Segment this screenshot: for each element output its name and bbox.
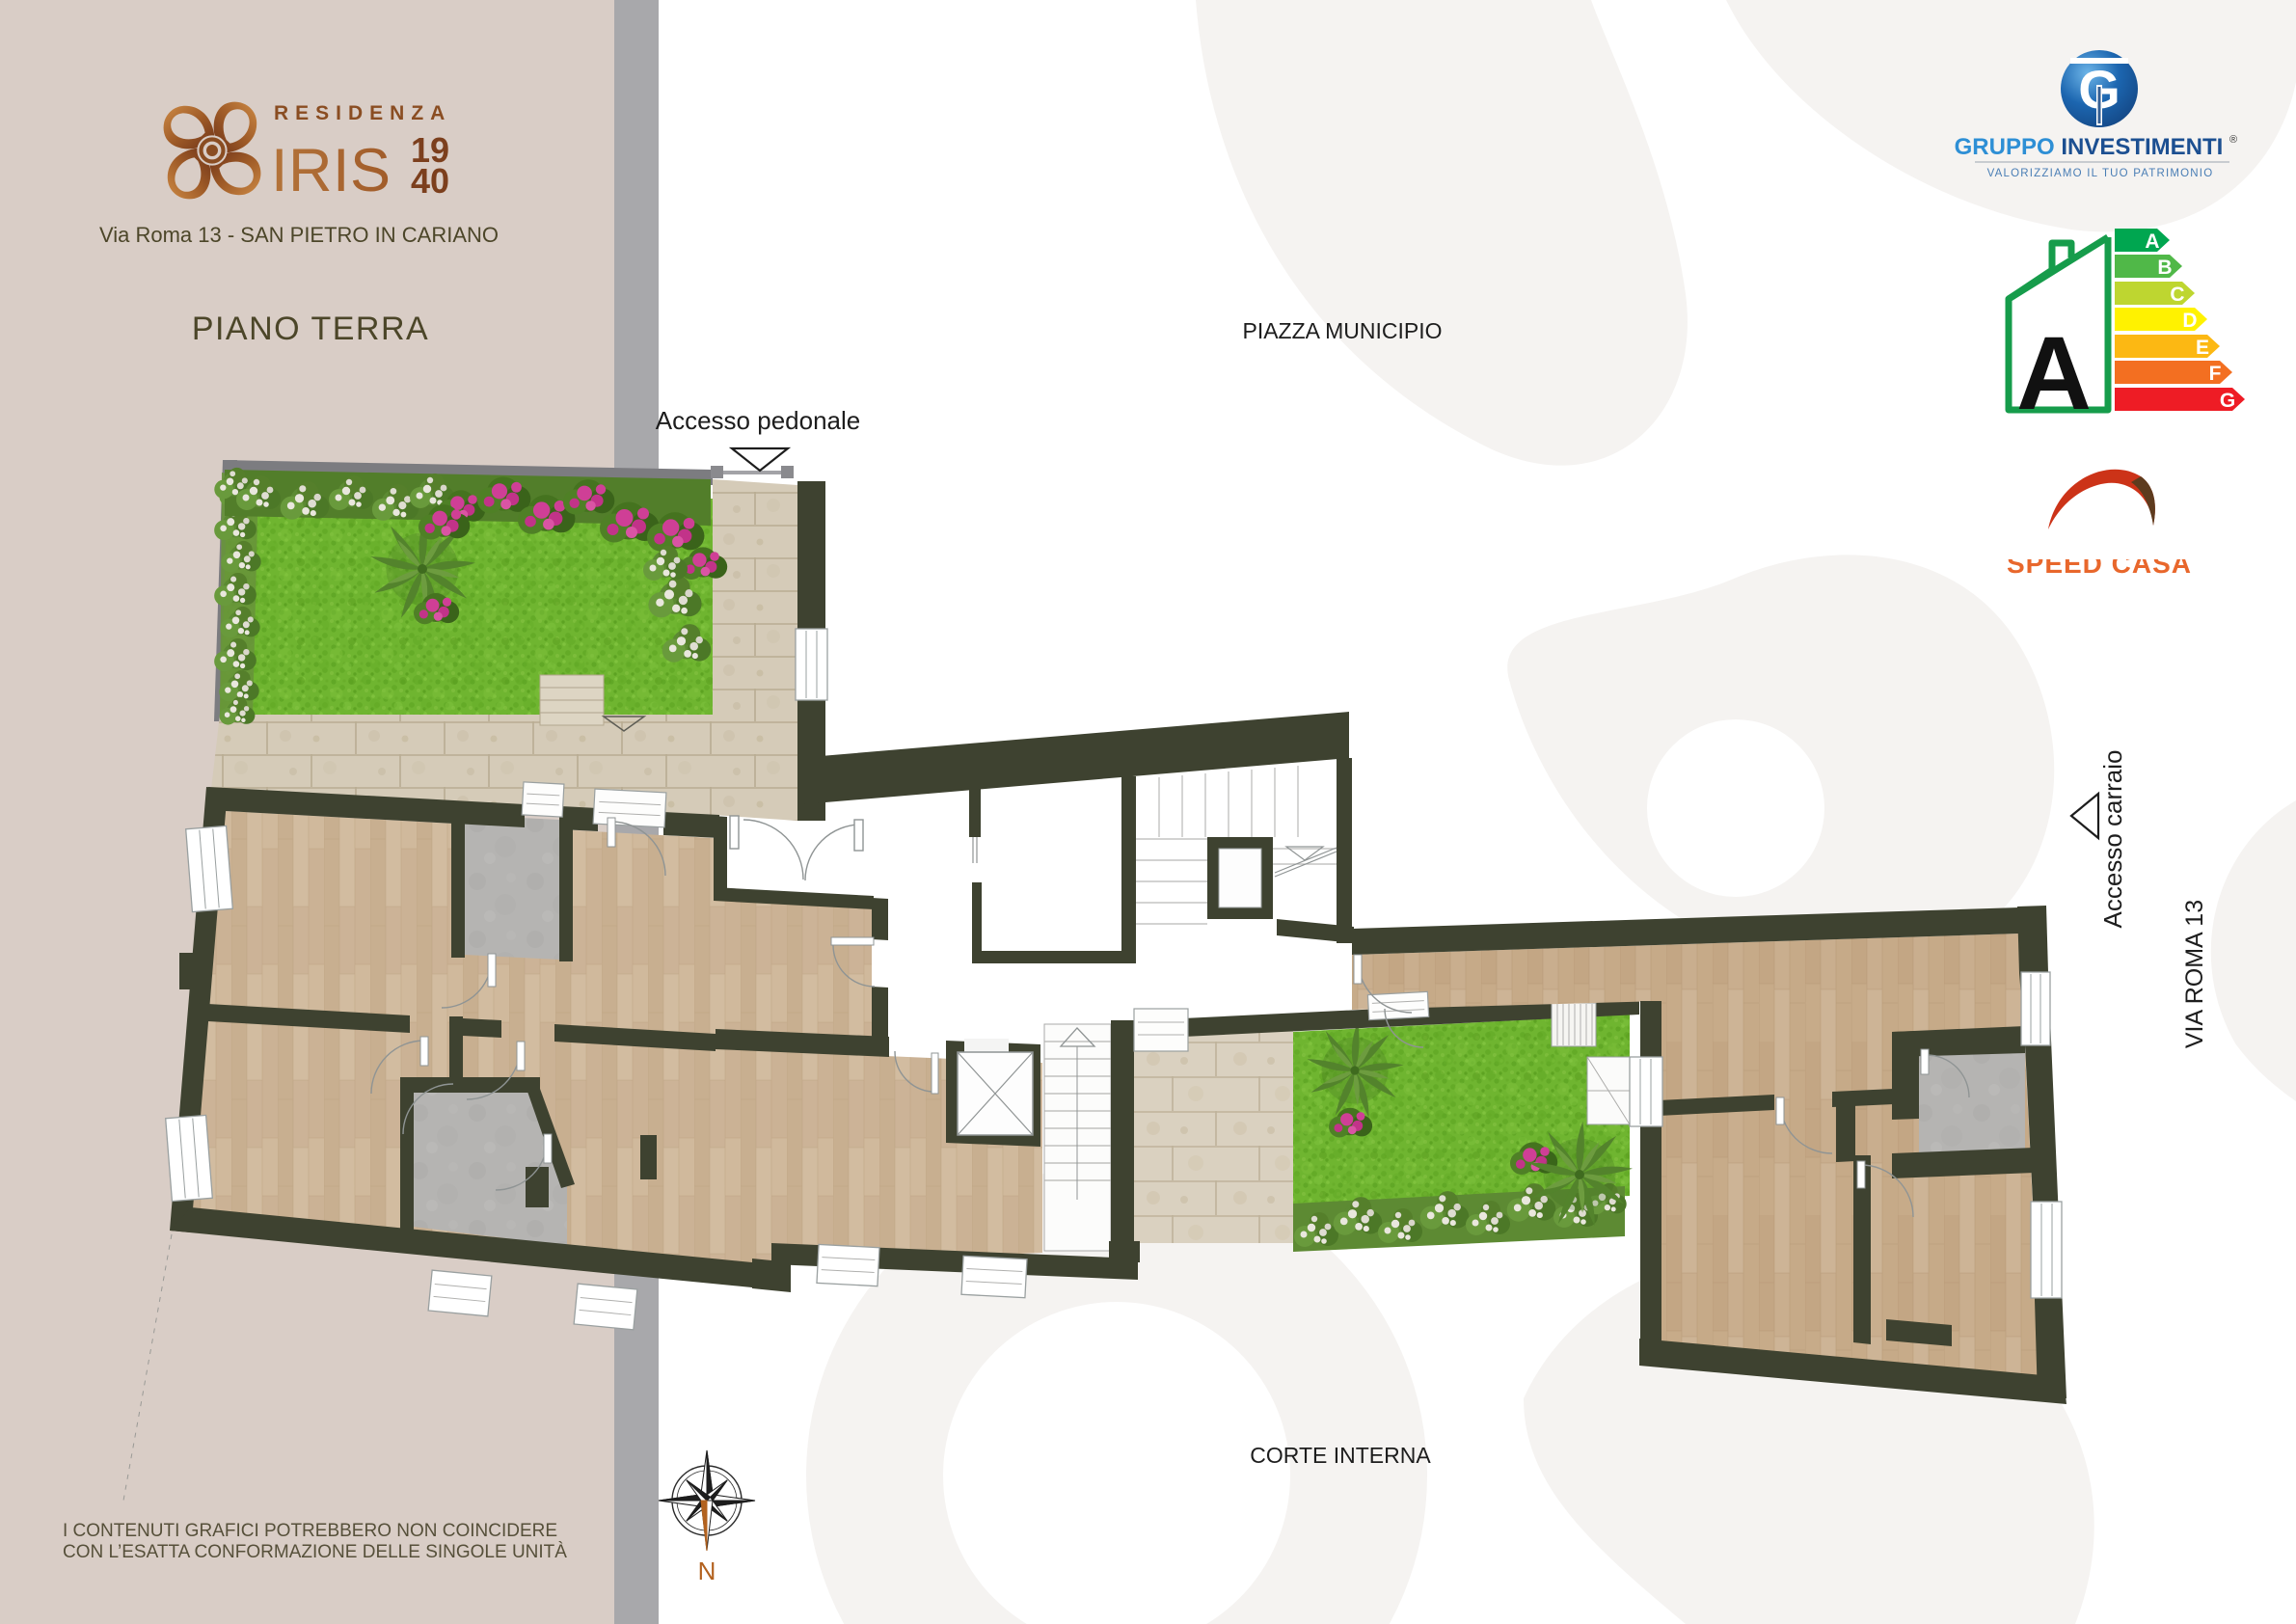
svg-text:VIA ROMA 13: VIA ROMA 13	[2181, 900, 2208, 1048]
svg-text:D: D	[2182, 310, 2197, 332]
svg-text:Via Roma 13 - SAN PIETRO IN CA: Via Roma 13 - SAN PIETRO IN CARIANO	[99, 223, 499, 247]
svg-text:GRUPPO INVESTIMENTI: GRUPPO INVESTIMENTI	[1955, 134, 2224, 160]
svg-text:C: C	[2170, 284, 2184, 306]
svg-text:A: A	[2016, 314, 2092, 431]
svg-text:®: ®	[2229, 134, 2237, 146]
svg-text:B: B	[2157, 257, 2172, 279]
svg-text:CON L’ESATTA CONFORMAZIONE DEL: CON L’ESATTA CONFORMAZIONE DELLE SINGOLE…	[63, 1542, 567, 1562]
svg-text:I CONTENUTI GRAFICI POTREBBERO: I CONTENUTI GRAFICI POTREBBERO NON COINC…	[63, 1521, 557, 1541]
svg-text:Accesso carraio: Accesso carraio	[2098, 750, 2127, 929]
svg-text:Accesso pedonale: Accesso pedonale	[656, 406, 860, 435]
svg-text:F: F	[2209, 363, 2222, 385]
svg-text:PIAZZA MUNICIPIO: PIAZZA MUNICIPIO	[1242, 318, 1442, 343]
svg-text:G: G	[2220, 390, 2235, 412]
svg-text:A: A	[2145, 230, 2159, 253]
svg-text:40: 40	[411, 161, 449, 201]
svg-text:RESIDENZA: RESIDENZA	[274, 102, 451, 124]
svg-text:PIANO TERRA: PIANO TERRA	[192, 311, 429, 347]
svg-text:E: E	[2196, 337, 2209, 359]
svg-text:IRIS: IRIS	[271, 137, 392, 204]
svg-text:N: N	[698, 1556, 716, 1585]
svg-text:CORTE INTERNA: CORTE INTERNA	[1250, 1443, 1431, 1468]
svg-text:VALORIZZIAMO IL TUO PATRIMONIO: VALORIZZIAMO IL TUO PATRIMONIO	[1987, 168, 2214, 179]
